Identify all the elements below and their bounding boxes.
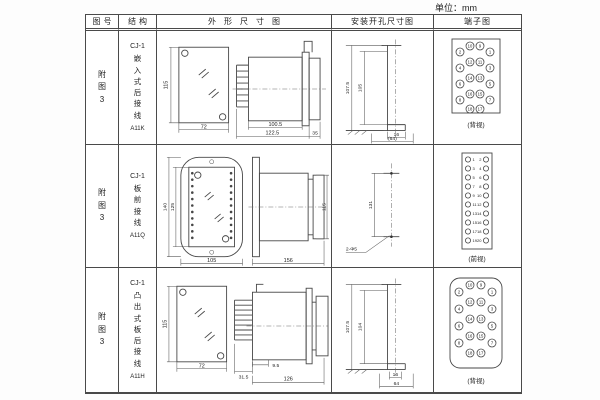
model-label: CJ-1 bbox=[130, 43, 145, 50]
svg-text:10: 10 bbox=[477, 193, 482, 198]
svg-text:4: 4 bbox=[479, 166, 482, 171]
front-view: 115 72 bbox=[162, 286, 226, 372]
terminal-circles: 2 4 6 8 10 12 14 16 18 9 11 13 15 17 1 3 bbox=[455, 281, 496, 357]
dim-label: 104 bbox=[358, 323, 364, 331]
header-terminal: 端子图 bbox=[434, 15, 521, 31]
svg-text:17: 17 bbox=[479, 351, 484, 356]
svg-text:12: 12 bbox=[468, 60, 473, 65]
dim-label: 35 bbox=[312, 131, 318, 137]
view-label: (背视) bbox=[467, 376, 484, 385]
dim-label: 107.5 bbox=[345, 82, 351, 95]
dim-label: 9.5 bbox=[272, 363, 279, 369]
figure-cell-a11k: 附图3 bbox=[86, 31, 119, 145]
dim-label: 140 bbox=[162, 203, 168, 212]
terminal-cell-a11q: 1 3 5 7 9 11 13 15 17 19 2 4 6 8 10 12 1 bbox=[434, 145, 521, 268]
unit-label: 单位：mm bbox=[408, 1, 504, 14]
terminal-drawing-a11k: 2 4 6 8 10 12 14 16 18 9 11 13 15 17 1 3 bbox=[434, 31, 521, 144]
side-view: 156 115 bbox=[248, 157, 329, 265]
install-drawing-a11q: 131 2-Φ5 bbox=[332, 145, 433, 267]
svg-text:14: 14 bbox=[477, 211, 482, 216]
structure-cell-a11h: CJ-1 凸出式板后接线 A11H bbox=[119, 268, 157, 393]
page: 单位：mm 图号 结构 外形尺寸图 安装开孔尺寸图 端子图 附图3 CJ-1 嵌… bbox=[0, 0, 600, 400]
model-code: A11K bbox=[130, 126, 144, 132]
dim-label: 64 bbox=[394, 381, 400, 387]
svg-text:7: 7 bbox=[473, 184, 476, 189]
view-label: (前视) bbox=[468, 254, 485, 263]
dim-label: 105 bbox=[207, 258, 216, 264]
model-label: CJ-1 bbox=[130, 280, 145, 287]
dim-label: 131 bbox=[368, 201, 374, 209]
dim-label: 115 bbox=[163, 81, 169, 90]
view-label: (背视) bbox=[467, 120, 484, 129]
svg-text:18: 18 bbox=[477, 229, 482, 234]
terminal-cell-a11h: 2 4 6 8 10 12 14 16 18 9 11 13 15 17 1 3 bbox=[434, 268, 521, 393]
install-cell-a11h: 107.5 104 16 64 bbox=[332, 268, 434, 393]
outline-cell-a11q: 140 125 105 156 115 bbox=[157, 145, 332, 268]
svg-text:16: 16 bbox=[477, 220, 482, 225]
dim-label: 156 bbox=[284, 258, 293, 264]
header-outline: 外形尺寸图 bbox=[157, 15, 332, 31]
install-drawing-a11h: 107.5 104 16 64 bbox=[332, 268, 433, 392]
cutout-section bbox=[346, 279, 405, 376]
outline-drawing-a11q: 140 125 105 156 115 bbox=[157, 145, 331, 267]
svg-text:11: 11 bbox=[479, 300, 484, 305]
svg-text:12: 12 bbox=[477, 202, 482, 207]
structure-name: 凸出式板后接线 bbox=[134, 290, 142, 369]
svg-text:11: 11 bbox=[478, 60, 483, 65]
front-view: 115 72 bbox=[163, 47, 228, 133]
svg-text:6: 6 bbox=[479, 175, 482, 180]
dim-label: 72 bbox=[201, 124, 207, 130]
svg-text:5: 5 bbox=[473, 175, 476, 180]
cutout-section bbox=[346, 39, 405, 136]
holes-label: 2-Φ5 bbox=[346, 247, 357, 253]
dim-label: 72 bbox=[199, 363, 205, 369]
model-code: A11Q bbox=[130, 233, 145, 239]
side-view: 31.5 9.5 126 bbox=[235, 284, 328, 384]
figure-no: 附图3 bbox=[98, 69, 106, 106]
svg-text:8: 8 bbox=[479, 184, 482, 189]
terminal-circles: 2 4 6 8 10 12 14 16 18 9 11 13 15 17 1 3 bbox=[456, 42, 494, 113]
outline-drawing-a11h: 115 72 31.5 9.5 126 bbox=[157, 268, 331, 392]
dim-label: 126 bbox=[284, 377, 293, 383]
terminal-drawing-a11h: 2 4 6 8 10 12 14 16 18 9 11 13 15 17 1 3 bbox=[434, 268, 521, 392]
structure-name: 板前接线 bbox=[134, 183, 142, 228]
header-structure: 结构 bbox=[119, 15, 157, 31]
install-drawing-a11k: 107.5 105 16 (64) bbox=[332, 31, 433, 144]
svg-text:13: 13 bbox=[478, 76, 483, 81]
figure-cell-a11h: 附图3 bbox=[86, 268, 119, 393]
structure-cell-a11q: CJ-1 板前接线 A11Q bbox=[119, 145, 157, 268]
header-figure: 图号 bbox=[86, 15, 119, 31]
figure-no: 附图3 bbox=[98, 187, 106, 224]
spec-table: 图号 结构 外形尺寸图 安装开孔尺寸图 端子图 附图3 CJ-1 嵌入式后接线 … bbox=[85, 14, 522, 394]
svg-text:16: 16 bbox=[468, 334, 473, 339]
outline-cell-a11h: 115 72 31.5 9.5 126 bbox=[157, 268, 332, 393]
dim-label: 125 bbox=[170, 203, 176, 212]
dim-label: 31.5 bbox=[239, 375, 249, 381]
svg-text:10: 10 bbox=[468, 283, 473, 288]
svg-text:14: 14 bbox=[468, 317, 473, 322]
outline-drawing-a11k: 115 72 100.5 122.5 35 bbox=[157, 31, 331, 144]
structure-name: 嵌入式后接线 bbox=[134, 53, 142, 121]
header-install: 安装开孔尺寸图 bbox=[332, 15, 434, 31]
dim-label: 107.5 bbox=[345, 321, 351, 334]
side-view: 100.5 122.5 35 bbox=[233, 41, 326, 138]
svg-text:9: 9 bbox=[473, 193, 476, 198]
svg-text:14: 14 bbox=[468, 76, 473, 81]
dim-label: 115 bbox=[322, 203, 328, 211]
svg-text:1: 1 bbox=[473, 157, 476, 162]
svg-text:2: 2 bbox=[479, 157, 482, 162]
svg-text:15: 15 bbox=[479, 334, 484, 339]
outline-cell-a11k: 115 72 100.5 122.5 35 bbox=[157, 31, 332, 145]
dim-label: 105 bbox=[358, 84, 364, 92]
model-label: CJ-1 bbox=[130, 173, 145, 180]
dim-label: 115 bbox=[162, 320, 168, 329]
figure-no: 附图3 bbox=[98, 311, 106, 348]
terminal-cell-a11k: 2 4 6 8 10 12 14 16 18 9 11 13 15 17 1 3 bbox=[434, 31, 521, 145]
svg-text:12: 12 bbox=[468, 300, 473, 305]
svg-text:20: 20 bbox=[477, 238, 482, 243]
structure-cell-a11k: CJ-1 嵌入式后接线 A11K bbox=[119, 31, 157, 145]
dim-label: 16 bbox=[393, 372, 399, 378]
dim-label: (64) bbox=[388, 136, 397, 142]
dim-label: 122.5 bbox=[266, 131, 280, 137]
svg-text:18: 18 bbox=[468, 351, 473, 356]
terminal-drawing-a11q: 1 3 5 7 9 11 13 15 17 19 2 4 6 8 10 12 1 bbox=[434, 145, 521, 267]
svg-text:16: 16 bbox=[468, 92, 473, 97]
install-cell-a11k: 107.5 105 16 (64) bbox=[332, 31, 434, 145]
svg-text:18: 18 bbox=[468, 107, 473, 112]
install-cell-a11q: 131 2-Φ5 bbox=[332, 145, 434, 268]
svg-text:10: 10 bbox=[468, 44, 473, 49]
svg-text:13: 13 bbox=[479, 317, 484, 322]
figure-cell-a11q: 附图3 bbox=[86, 145, 119, 268]
terminal-circles: 1 3 5 7 9 11 13 15 17 19 2 4 6 8 10 12 1 bbox=[465, 157, 488, 243]
svg-text:3: 3 bbox=[473, 166, 476, 171]
front-view: 140 125 105 bbox=[162, 157, 242, 265]
svg-text:17: 17 bbox=[478, 107, 483, 112]
model-code: A11H bbox=[130, 374, 145, 380]
dim-label: 100.5 bbox=[268, 122, 282, 128]
svg-text:15: 15 bbox=[478, 92, 483, 97]
